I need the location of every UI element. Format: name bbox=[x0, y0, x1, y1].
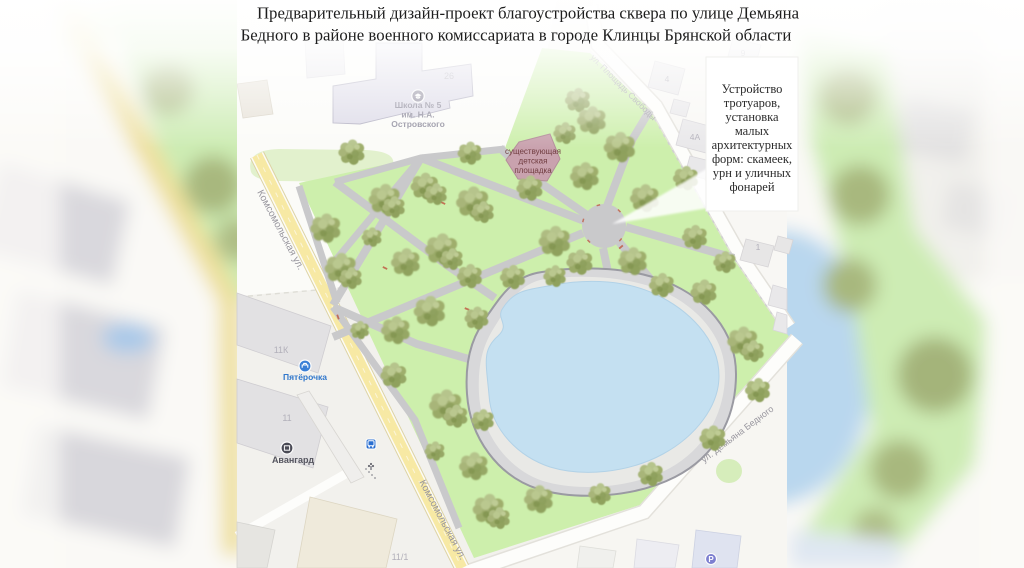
svg-text:Устройство: Устройство bbox=[722, 82, 783, 96]
svg-text:тротуаров,: тротуаров, bbox=[724, 96, 780, 110]
svg-text:урн и уличных: урн и уличных bbox=[713, 166, 792, 180]
svg-text:фонарей: фонарей bbox=[729, 180, 774, 194]
svg-text:архитектурных: архитектурных bbox=[712, 138, 794, 152]
svg-text:Бедного в районе военного коми: Бедного в районе военного комиссариата в… bbox=[241, 26, 792, 45]
svg-text:Предварительный дизайн-проект: Предварительный дизайн-проект благоустро… bbox=[257, 4, 800, 23]
svg-text:установка: установка bbox=[725, 110, 779, 124]
svg-text:малых: малых bbox=[735, 124, 770, 138]
svg-text:форм: скамеек,: форм: скамеек, bbox=[712, 152, 792, 166]
